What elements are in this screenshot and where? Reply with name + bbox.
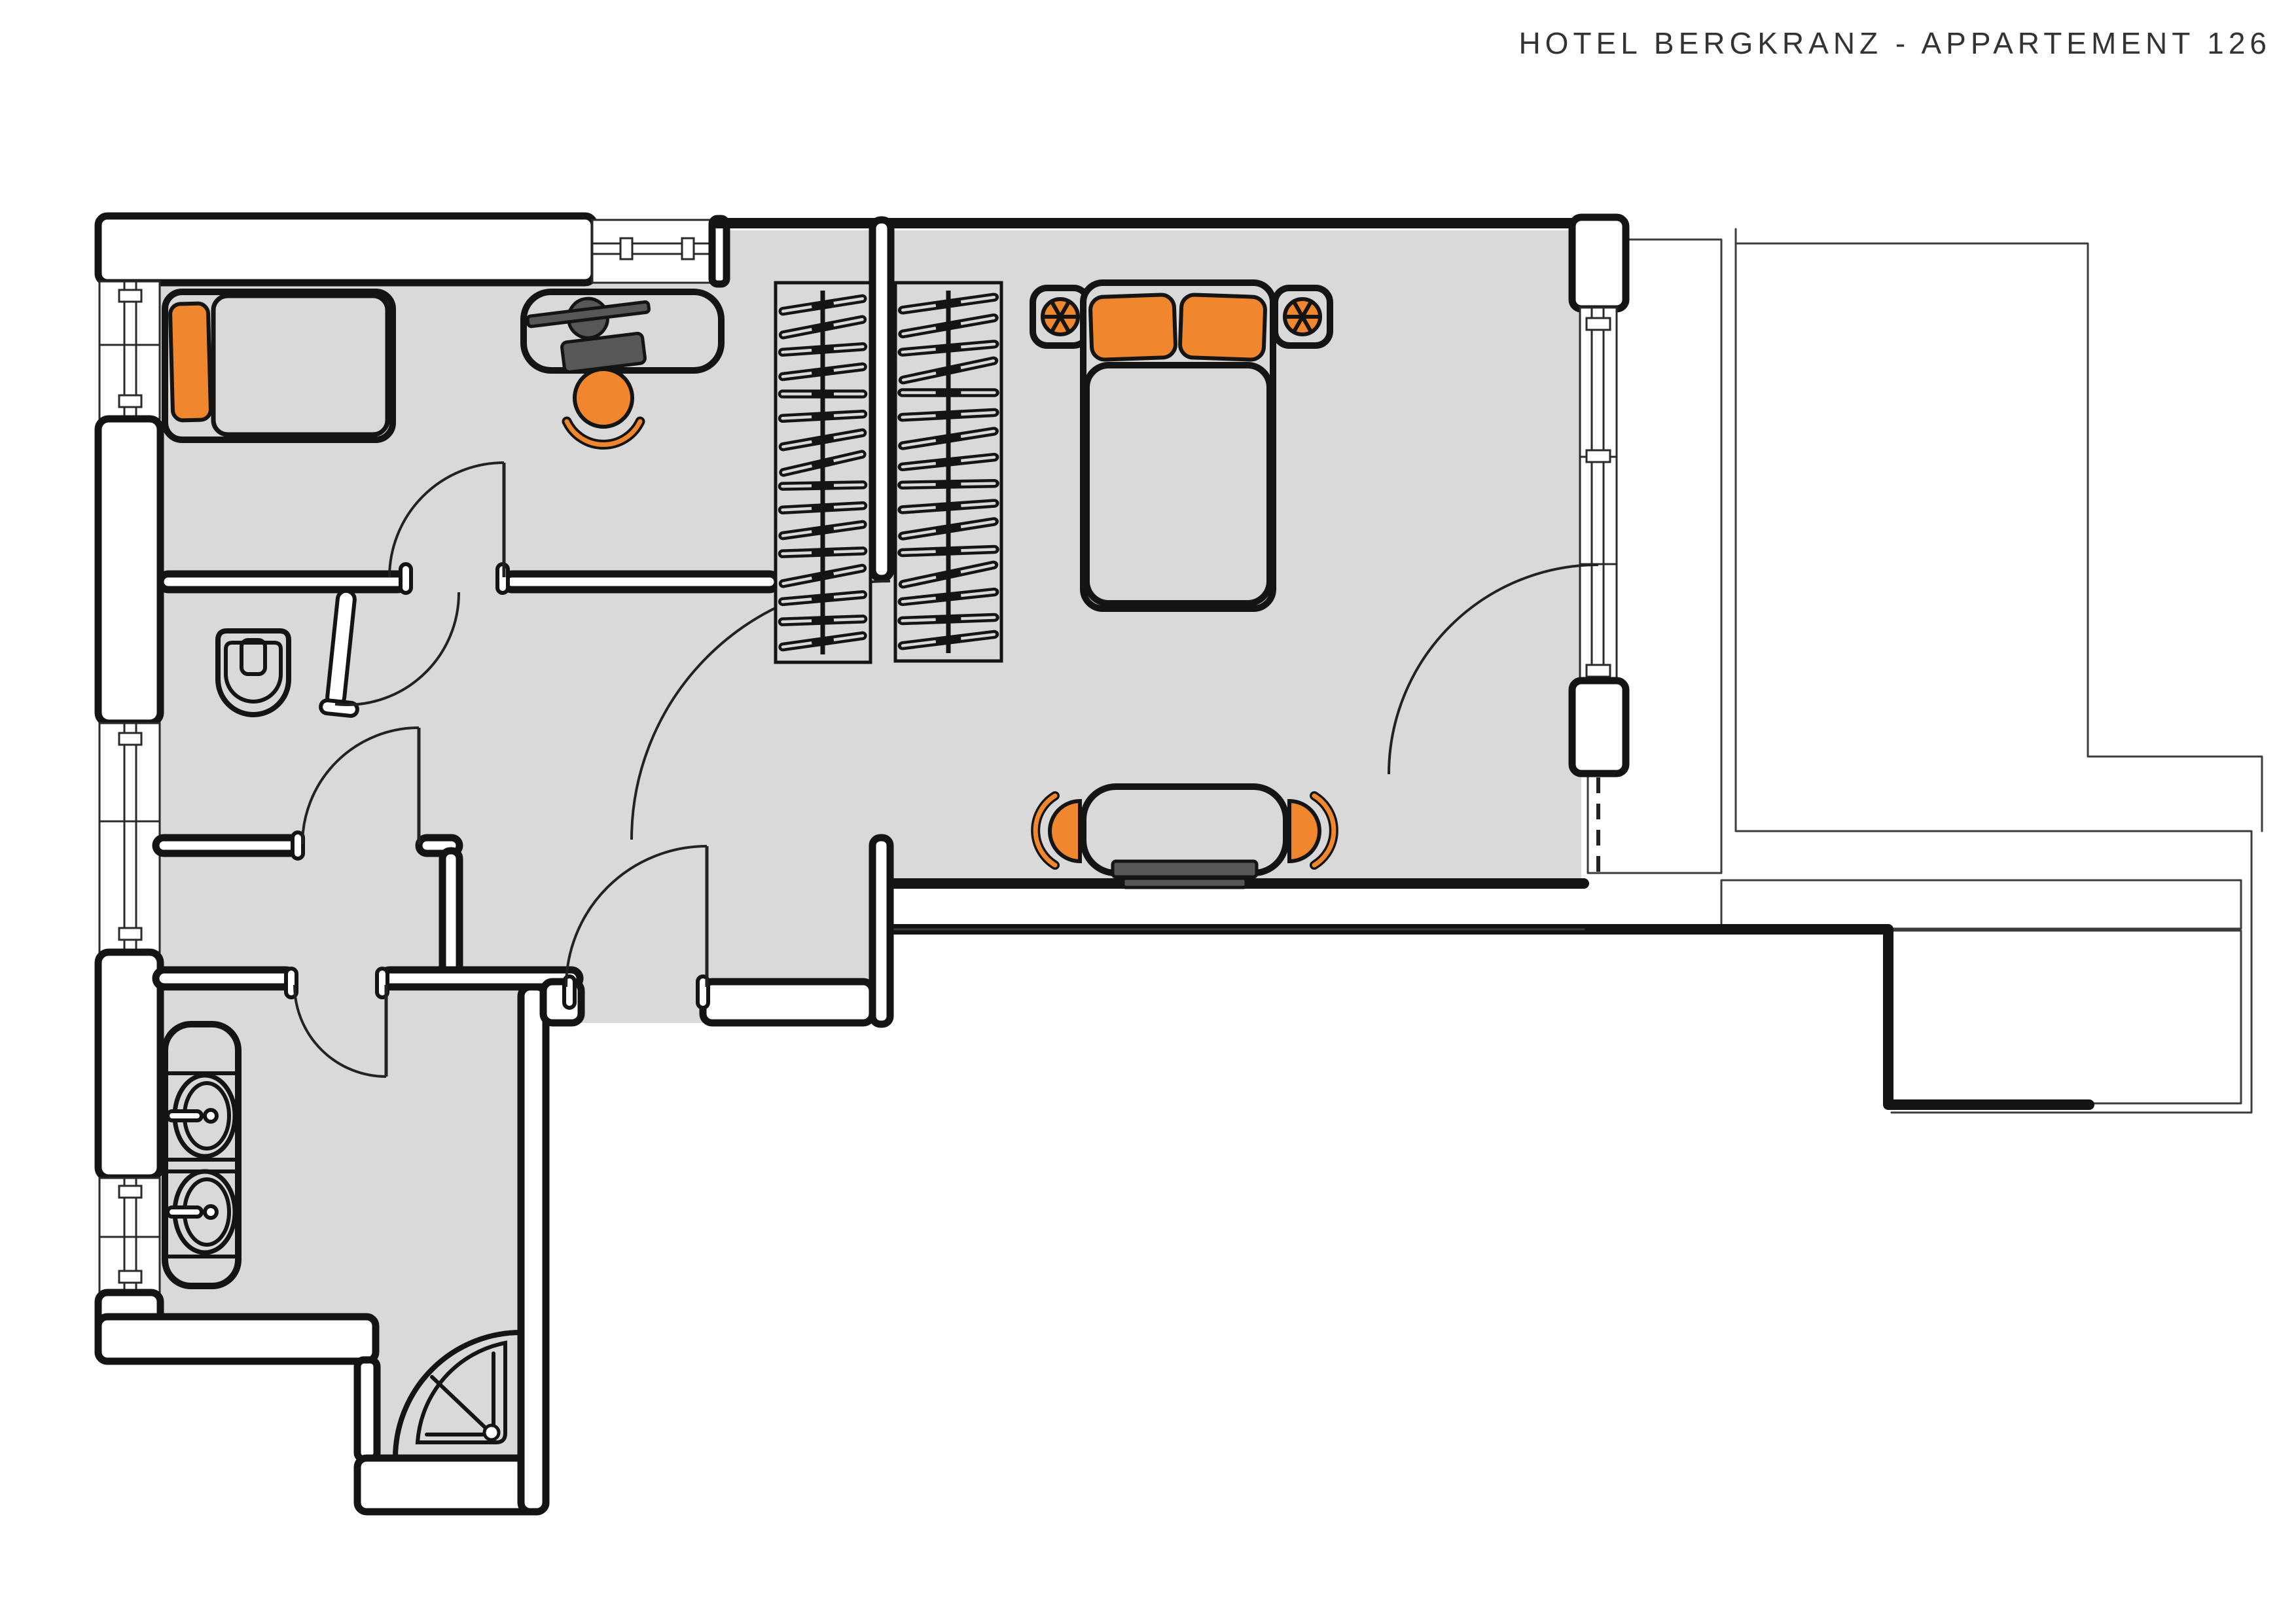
wall-bath-bottom-left xyxy=(98,1317,376,1361)
wall-divider-rooms xyxy=(872,220,891,579)
wardrobe-hangers-right xyxy=(895,283,1001,661)
wall-left-exterior xyxy=(98,281,160,1361)
balcony-railing xyxy=(1736,229,2251,1113)
tap-icon xyxy=(168,1111,202,1120)
wall-pier xyxy=(98,419,160,723)
wall-hall-right xyxy=(872,838,890,1024)
building-step-outline xyxy=(890,929,2089,1105)
wall-pier xyxy=(1572,217,1626,309)
wall-pier xyxy=(98,952,160,1178)
wall-pier xyxy=(1572,681,1626,774)
window-left-1 xyxy=(99,281,160,419)
double-bed-pillow-left xyxy=(1090,294,1175,360)
bedside-lamp-right xyxy=(1285,299,1320,334)
radiator xyxy=(1113,861,1257,877)
bedside-lamp-left xyxy=(1043,299,1078,334)
wall-entry xyxy=(703,982,872,1023)
wall-bedroom-right xyxy=(1572,217,1626,774)
wall-hall-top xyxy=(504,574,778,590)
window-top xyxy=(592,220,714,283)
wardrobe-hangers-left xyxy=(776,283,870,662)
window-left-3 xyxy=(99,1178,160,1293)
orange-pillow xyxy=(170,303,211,420)
window-balcony xyxy=(1580,308,1617,682)
window-left-2 xyxy=(99,723,160,952)
wall-top-left xyxy=(98,216,594,283)
floor-plan-canvas: HOTEL BERGKRANZ - APPARTEMENT 126 xyxy=(0,0,2296,1623)
tap-icon xyxy=(168,1207,202,1217)
wall-single-room-bottom xyxy=(160,574,406,590)
wall-bathroom-top xyxy=(156,970,295,987)
plan-title: HOTEL BERGKRANZ - APPARTEMENT 126 xyxy=(1518,26,2271,60)
shower-drain xyxy=(484,1425,499,1440)
double-bed-duvet xyxy=(1086,365,1270,603)
wall-wc-bottom xyxy=(156,838,298,853)
neighbor-outline xyxy=(1736,243,2262,831)
double-bed-pillow-right xyxy=(1179,294,1265,360)
single-bed-mattress xyxy=(213,296,387,435)
wall-bath-step xyxy=(357,1360,377,1459)
wall-bath-right xyxy=(521,987,546,1512)
